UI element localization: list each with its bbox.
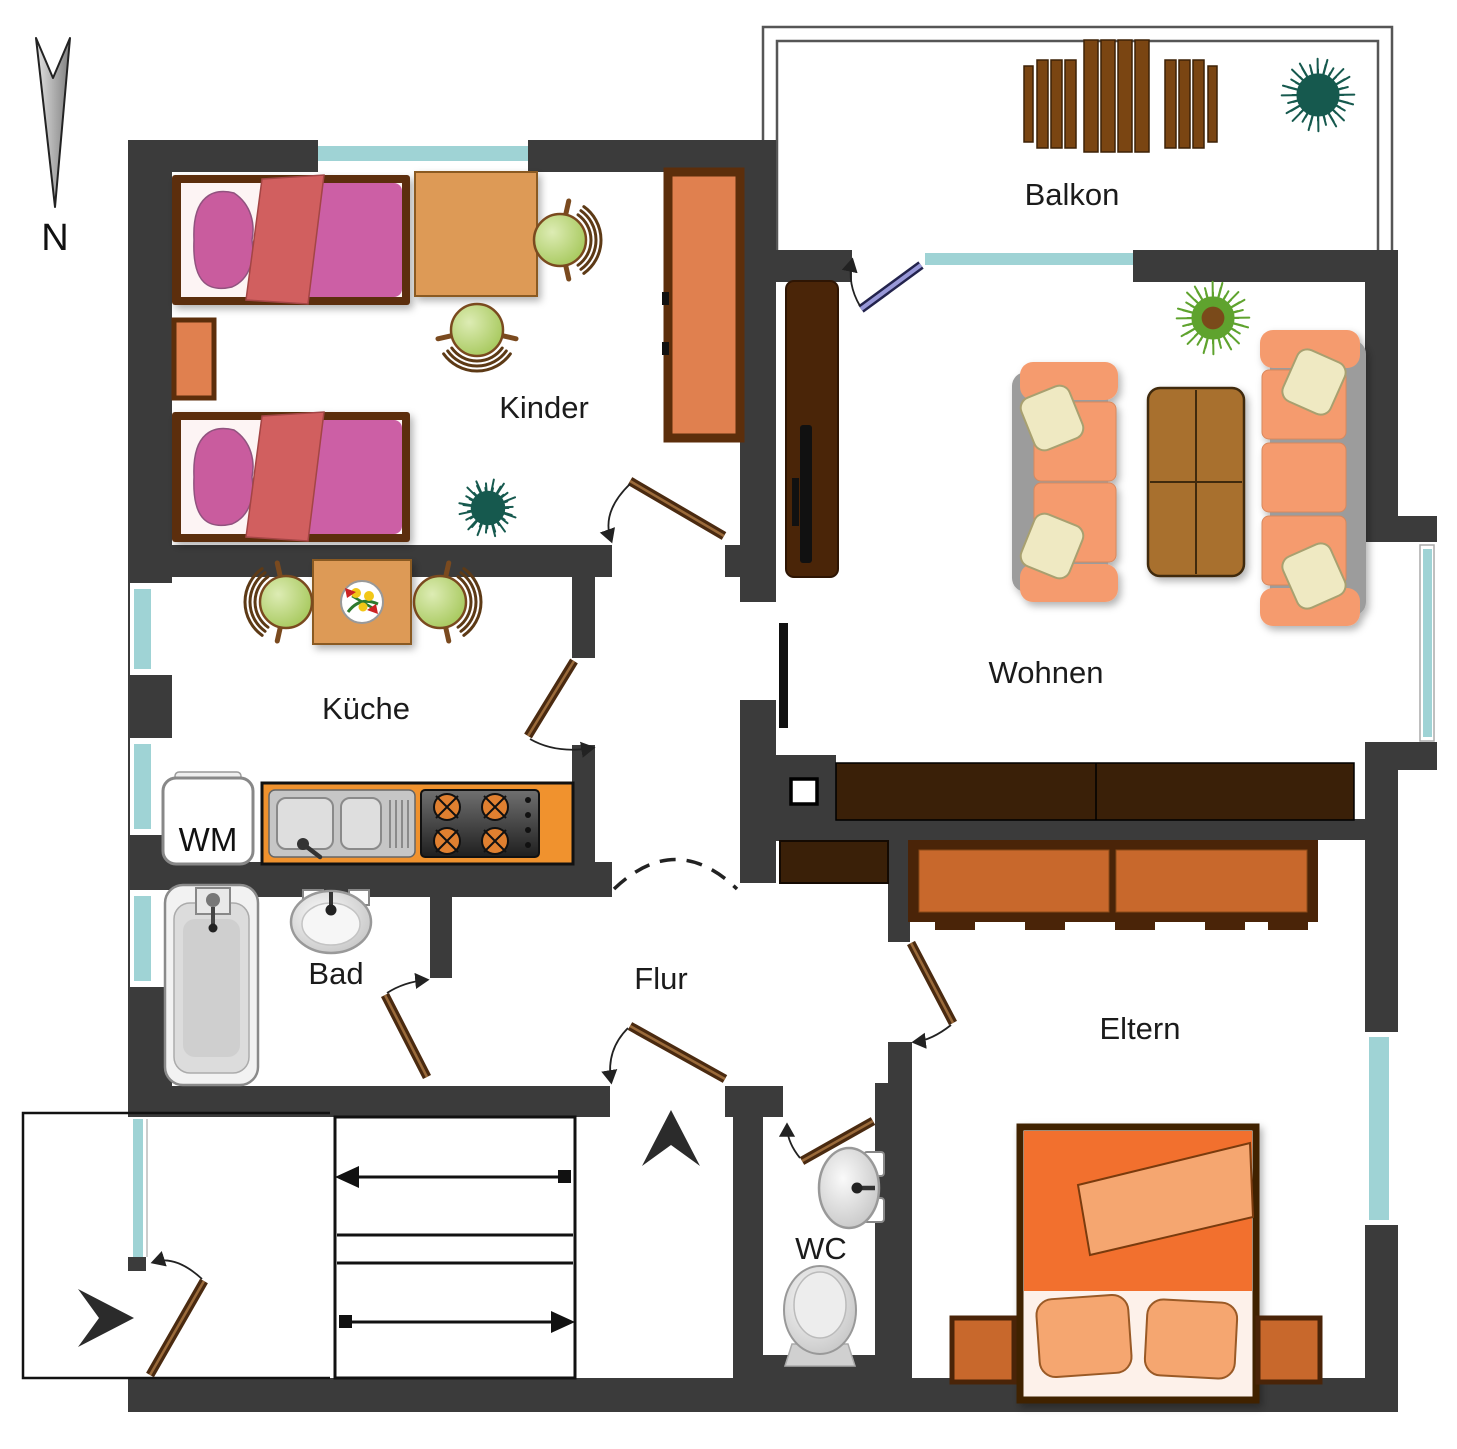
window-kueche-west-1: [130, 583, 172, 675]
plant-balcony: [1282, 59, 1355, 132]
balcony-bench-set: [1024, 40, 1217, 152]
room-label-wohnen: Wohnen: [989, 655, 1104, 690]
north-arrow-icon: N: [36, 38, 70, 259]
tv-cabinet: [786, 281, 838, 577]
desk-chair-bottom: [438, 304, 516, 371]
direction-chevron-flur: [642, 1110, 700, 1166]
door-kueche: [528, 661, 592, 750]
plant-kinder: [459, 480, 515, 537]
kitchen-sink: [269, 790, 415, 857]
window-wohnen-north: [925, 250, 1133, 282]
door-building-entrance: [150, 1260, 204, 1375]
window-landing: [133, 1119, 143, 1257]
faucet-icon: [326, 905, 337, 916]
room-label-kueche: Küche: [322, 691, 410, 726]
kid-bed-2: [172, 412, 410, 542]
balcony-bench-left: [1024, 60, 1076, 148]
door-kinder: [608, 481, 724, 540]
stairs: [335, 1117, 575, 1378]
flur-shelf: [780, 841, 888, 883]
kitchen-stove: [421, 790, 539, 857]
eltern-nightstand-left: [952, 1318, 1014, 1382]
bathtub: [165, 885, 258, 1085]
kid-desk: [415, 172, 537, 296]
door-apartment-entrance: [610, 1026, 725, 1081]
flower-plate: [341, 581, 383, 623]
room-label-kinder: Kinder: [499, 390, 589, 425]
room-label-wc: WC: [795, 1231, 847, 1266]
door-balkon: [851, 261, 921, 309]
room-label-flur: Flur: [634, 961, 687, 996]
balcony-table: [1084, 40, 1149, 152]
balcony-bench-right: [1165, 60, 1217, 148]
door-bad: [385, 980, 427, 1077]
room-label-bad: Bad: [308, 956, 363, 991]
room-label-eltern: Eltern: [1100, 1011, 1181, 1046]
balcony-railing: [763, 27, 1392, 252]
eltern-nightstand-right: [1258, 1318, 1320, 1382]
window-kinder-north: [318, 140, 528, 172]
kid-bed-1: [172, 175, 410, 305]
bad-sink: [291, 890, 371, 953]
kitchen-counter: [262, 783, 573, 864]
wc-toilet: [784, 1266, 856, 1366]
wohnen-sideboard: [836, 763, 1354, 820]
door-eltern: [911, 943, 953, 1042]
wc-sink: [819, 1148, 884, 1228]
eltern-bed: [1020, 1127, 1256, 1400]
desk-chair-right: [534, 201, 601, 279]
compass-label: N: [41, 217, 68, 259]
washing-machine: WM: [163, 772, 253, 864]
coffee-table: [1148, 388, 1244, 576]
chimney-symbol: [791, 779, 817, 804]
tv-icon: [800, 425, 812, 563]
washing-machine-label: WM: [179, 821, 238, 858]
plant-wohnen: [1177, 282, 1250, 355]
eltern-wardrobe: [908, 840, 1318, 930]
room-label-balkon: Balkon: [1025, 177, 1120, 212]
wall-partition-thin: [779, 623, 788, 728]
sofa-right: [1260, 330, 1366, 626]
floorplan: N: [0, 0, 1457, 1449]
kid-nightstand: [174, 320, 214, 398]
kinder-wardrobe: [662, 172, 740, 438]
faucet-icon: [852, 1183, 863, 1194]
window-wohnen-bay-east: [1398, 542, 1437, 742]
direction-chevron-landing: [78, 1289, 134, 1347]
entry-landing: [23, 1113, 330, 1378]
open-passage-arch: [614, 860, 737, 890]
window-eltern-east: [1365, 1032, 1398, 1225]
sofa-left: [1012, 362, 1118, 602]
